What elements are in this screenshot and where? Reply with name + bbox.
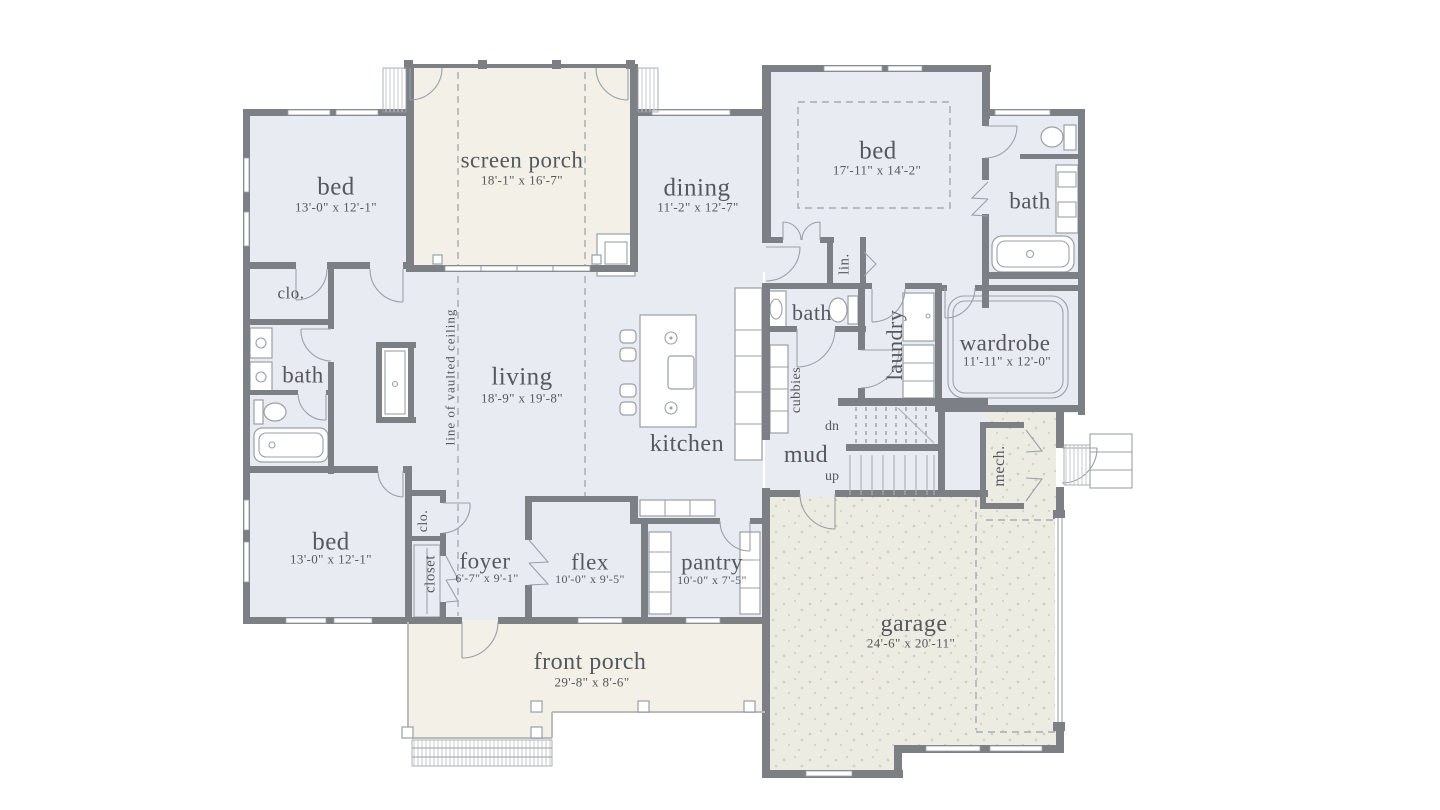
room-label-screen-porch: screen porch [461,149,584,172]
floor-plan: bed 13'-0" x 12'-1" screen porch 18'-1" … [0,0,1440,810]
vaulted-ceiling-label: line of vaulted ceiling [444,309,457,446]
stair-down-label: dn [825,420,839,434]
room-dims-wardrobe: 11'-11" x 12'-0" [963,355,1051,368]
room-label-pantry: pantry [681,551,743,574]
kitchen-counter [735,288,762,460]
room-dims-garage: 24'-6" x 20'-11" [867,637,955,650]
room-label-clo-upper-left: clo. [277,285,304,302]
stair-up-label: up [825,470,839,484]
shower [382,348,408,417]
room-label-garage: garage [881,612,948,636]
room-dims-screen-porch: 18'-1" x 16'-7" [481,174,563,187]
stool [620,402,636,415]
room-label-bath-center: bath [792,302,832,324]
garage-door [1055,518,1065,722]
room-label-bed-upper-right: bed [859,139,897,164]
room-label-closet: closet [424,555,439,593]
room-label-mud: mud [784,443,828,467]
room-label-mech: mech. [992,445,1008,486]
room-label-bed-upper-left: bed [317,175,355,200]
room-label-wardrobe: wardrobe [960,332,1051,355]
room-label-bath-upper-right: bath [1009,190,1051,213]
laundry-sink [903,293,934,398]
room-label-foyer: foyer [459,550,510,573]
room-label-front-porch: front porch [534,650,647,674]
room-label-clo-lower: clo. [417,510,431,533]
room-label-bath-left: bath [282,364,324,387]
toilet [1064,125,1076,150]
room-dims-bed-lower-left: 13'-0" x 12'-1" [290,553,372,566]
room-dims-bed-upper-right: 17'-11" x 14'-2" [833,164,921,177]
room-dims-bed-upper-left: 13'-0" x 12'-1" [295,201,377,214]
stool [620,330,636,343]
room-dims-dining: 11'-2" x 12'-7" [657,201,738,214]
toilet [254,400,263,424]
room-dims-front-porch: 29'-8" x 8'-6" [554,676,629,689]
cubbies-bench [770,345,788,433]
room-label-dining: dining [664,176,731,201]
room-label-flex: flex [571,551,609,574]
room-dims-living: 18'-9" x 19'-8" [481,392,563,405]
room-label-cubbies: cubbies [790,367,804,413]
room-label-laundry: laundry [884,310,906,381]
room-dims-flex: 10'-0" x 9'-5" [555,573,625,585]
hall-cabinets [640,500,715,516]
stool [620,348,636,361]
stool [620,384,636,397]
room-label-kitchen: kitchen [650,432,724,456]
vanity [1056,165,1078,233]
room-label-living: living [491,365,552,390]
floor-plan-canvas [0,0,1440,810]
toilet [848,296,858,324]
room-label-linen: lin. [838,253,853,275]
room-dims-foyer: 6'-7" x 9'-1" [455,572,518,584]
room-dims-pantry: 10'-0" x 7'-5" [677,574,747,586]
